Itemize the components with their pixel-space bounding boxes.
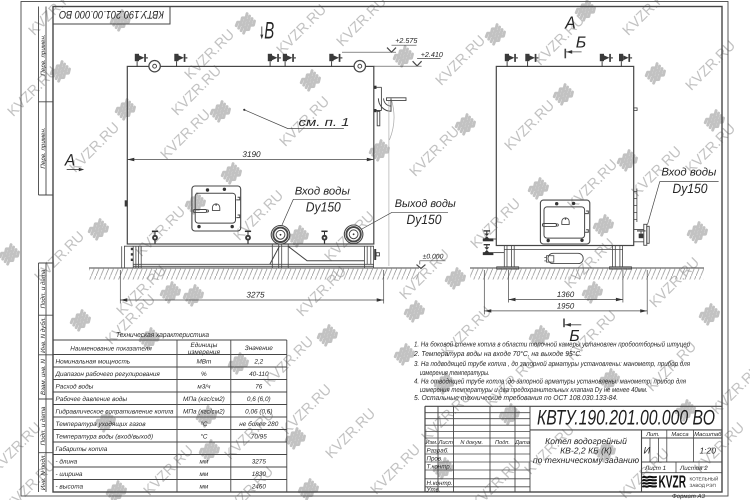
svg-text:Техническая характеристика: Техническая характеристика [116, 330, 209, 339]
svg-text:МВт: МВт [196, 359, 212, 366]
svg-text:Подп. и дата: Подп. и дата [40, 406, 47, 445]
svg-text:Dу150: Dу150 [306, 200, 341, 215]
svg-text:- высота: - высота [56, 484, 84, 491]
svg-text:Выход воды: Выход воды [395, 198, 456, 210]
svg-text:2. Температура воды на входе: 2. Температура воды на входе 70°С, на вы… [413, 349, 582, 358]
svg-text:Подп. и дата: Подп. и дата [40, 269, 47, 308]
svg-text:2460: 2460 [251, 484, 267, 491]
svg-text:3. На подводящей трубе котла: 3. На подводящей трубе котла , до запорн… [414, 359, 690, 368]
svg-text:±0.000: ±0.000 [423, 254, 444, 261]
svg-text:3275: 3275 [246, 291, 265, 300]
svg-text:Подп.: Подп. [495, 439, 510, 446]
svg-text:Габариты котла: Габариты котла [56, 446, 108, 453]
svg-text:76: 76 [255, 384, 263, 391]
svg-text:Диапазон рабочего регулировани: Диапазон рабочего регулирования [55, 371, 161, 378]
svg-text:Лит.: Лит. [645, 432, 660, 438]
svg-text:Перв. примен.: Перв. примен. [40, 127, 47, 168]
svg-text:Изм.: Изм. [426, 440, 438, 446]
svg-text:Т.контр.: Т.контр. [427, 464, 452, 471]
svg-text:В: В [264, 18, 274, 45]
svg-text:Значение: Значение [245, 345, 273, 352]
svg-text:0,6 (6,0): 0,6 (6,0) [247, 396, 271, 403]
svg-text:1. На боковой стенке котла в: 1. На боковой стенке котла в области топ… [414, 340, 690, 349]
svg-text:+2.410: +2.410 [421, 50, 443, 59]
svg-text:КВ-2,2 КБ (К): КВ-2,2 КБ (К) [560, 446, 612, 456]
svg-text:Лист: Лист [437, 440, 453, 446]
svg-text:0,06 (0,6): 0,06 (0,6) [245, 409, 272, 416]
svg-text:Инв. N дубл.: Инв. N дубл. [40, 317, 47, 353]
svg-text:измерения: измерения [188, 349, 221, 356]
svg-text:Температура воды (вход/выход): Температура воды (вход/выход) [56, 434, 154, 441]
svg-text:А: А [564, 13, 575, 33]
svg-text:Утв.: Утв. [426, 486, 441, 493]
svg-text:°С: °С [200, 421, 208, 428]
svg-text:Вход воды: Вход воды [295, 186, 350, 198]
svg-text:Б: Б [576, 35, 586, 52]
svg-text:1360: 1360 [557, 290, 575, 299]
svg-text:измерения температуры.: измерения температуры. [420, 368, 490, 377]
svg-text:5. Остальные технические треб: 5. Остальные технические требования по О… [414, 393, 618, 402]
svg-text:N докум.: N докум. [460, 439, 483, 446]
svg-text:Расход воды: Расход воды [56, 384, 94, 391]
svg-text:Dу150: Dу150 [407, 212, 442, 227]
svg-text:Масса: Масса [671, 432, 689, 438]
svg-text:1950: 1950 [557, 302, 575, 311]
svg-text:мм: мм [200, 459, 209, 466]
svg-text:м3/ч: м3/ч [197, 384, 211, 391]
svg-text:Взам. инв. N: Взам. инв. N [40, 358, 47, 395]
svg-text:см. п. 1: см. п. 1 [299, 117, 350, 129]
svg-text:1:20: 1:20 [699, 445, 716, 455]
svg-text:Масштаб: Масштаб [694, 431, 722, 438]
svg-text:3275: 3275 [252, 459, 267, 466]
svg-text:И: И [644, 445, 651, 456]
svg-text:Перв. примен.: Перв. примен. [40, 34, 47, 75]
svg-text:Пров.: Пров. [427, 456, 443, 463]
svg-text:%: % [201, 371, 207, 378]
svg-text:+2.575: +2.575 [395, 36, 418, 45]
svg-text:Гидравлическое сопративление к: Гидравлическое сопративление котла [56, 409, 174, 416]
svg-text:Наименование показателя: Наименование показателя [70, 346, 152, 353]
svg-text:Инв. N подл.: Инв. N подл. [40, 454, 47, 490]
svg-text:КВТУ.190.201.00.000 ВО: КВТУ.190.201.00.000 ВО [537, 407, 715, 430]
svg-text:Dу150: Dу150 [673, 181, 708, 196]
svg-text:Разраб.: Разраб. [427, 448, 449, 455]
svg-text:3190: 3190 [242, 150, 261, 159]
svg-text:Рабочее давление воды: Рабочее давление воды [56, 396, 128, 403]
svg-text:Дата: Дата [514, 440, 530, 446]
svg-text:ЗАВОД РЭП: ЗАВОД РЭП [690, 483, 716, 488]
svg-text:КВТУ.190.201.00.000 ВО: КВТУ.190.201.00.000 ВО [59, 8, 164, 20]
svg-text:Номинальная мощность: Номинальная мощность [56, 359, 131, 366]
svg-text:мм: мм [200, 484, 209, 491]
svg-text:КОТЕЛЬНЫЙ: КОТЕЛЬНЫЙ [690, 476, 719, 482]
svg-text:не более 280: не более 280 [239, 421, 278, 428]
svg-text:Температура уходящих газов: Температура уходящих газов [56, 421, 147, 428]
svg-text:мм: мм [200, 471, 209, 478]
svg-text:А: А [64, 152, 75, 170]
svg-text:по техническому заданию: по техническому заданию [533, 455, 640, 465]
svg-text:Вход воды: Вход воды [661, 166, 716, 178]
svg-text:°С: °С [200, 434, 208, 441]
svg-text:40-110: 40-110 [249, 371, 269, 378]
svg-text:Б: Б [569, 328, 579, 345]
svg-text:1830: 1830 [252, 471, 267, 478]
svg-text:2,2: 2,2 [253, 359, 263, 366]
svg-text:Формат А3: Формат А3 [672, 493, 705, 500]
svg-text:- длина: - длина [56, 459, 78, 466]
svg-text:МПа (кгс/см2): МПа (кгс/см2) [183, 396, 225, 403]
svg-text:- ширина: - ширина [56, 471, 83, 478]
svg-text:70/95: 70/95 [251, 434, 267, 441]
svg-text:МПа (кгс/см2): МПа (кгс/см2) [183, 409, 225, 416]
svg-text:KVZR: KVZR [659, 472, 687, 492]
